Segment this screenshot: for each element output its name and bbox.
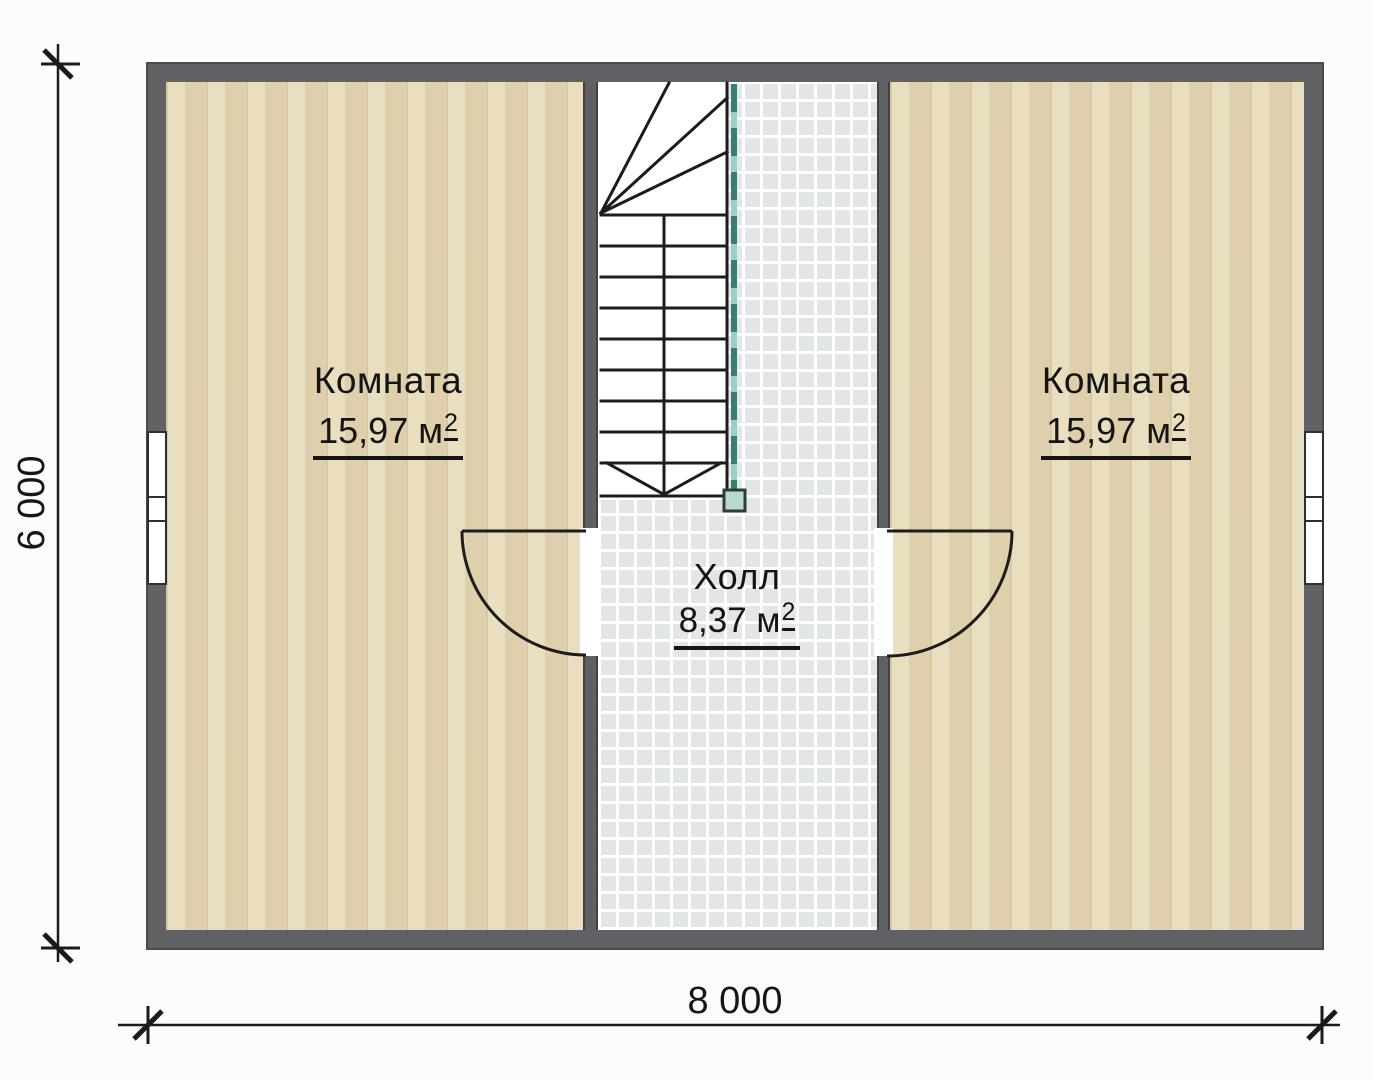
window-mullion [1306,496,1322,498]
room-right-name: Комната [956,360,1276,403]
room-right-area: 15,97 м2 [1041,410,1191,461]
hall-name: Холл [607,556,867,597]
hall-label: Холл 8,37 м2 [607,556,867,650]
floor-plan [148,64,1322,948]
window-mullion [1306,520,1322,522]
room-left-area-sup: 2 [444,409,458,442]
room-right-label: Комната 15,97 м2 [956,360,1276,460]
interior-wall-right [877,82,890,930]
room-left-floor [166,82,583,930]
room-right-area-sup: 2 [1172,409,1186,442]
window-mullion [149,496,165,498]
door-opening-left [580,528,601,656]
floor-plan-screen: Комната 15,97 м2 Комната 15,97 м2 Холл 8… [0,0,1373,1080]
interior-wall-left [583,82,598,930]
room-right-floor [890,82,1304,930]
window-mullion [149,520,165,522]
room-left-label: Комната 15,97 м2 [228,360,548,460]
hall-area: 8,37 м2 [674,601,801,650]
window-left [147,431,167,585]
dimension-width-label: 8 000 [560,980,910,1023]
dimension-height-label: 6 000 [11,423,57,583]
room-left-area: 15,97 м2 [313,410,463,461]
stairwell-area [598,82,727,500]
room-left-name: Комната [228,360,548,403]
window-right [1304,431,1324,585]
hall-area-sup: 2 [782,598,796,631]
door-opening-right [874,528,893,656]
